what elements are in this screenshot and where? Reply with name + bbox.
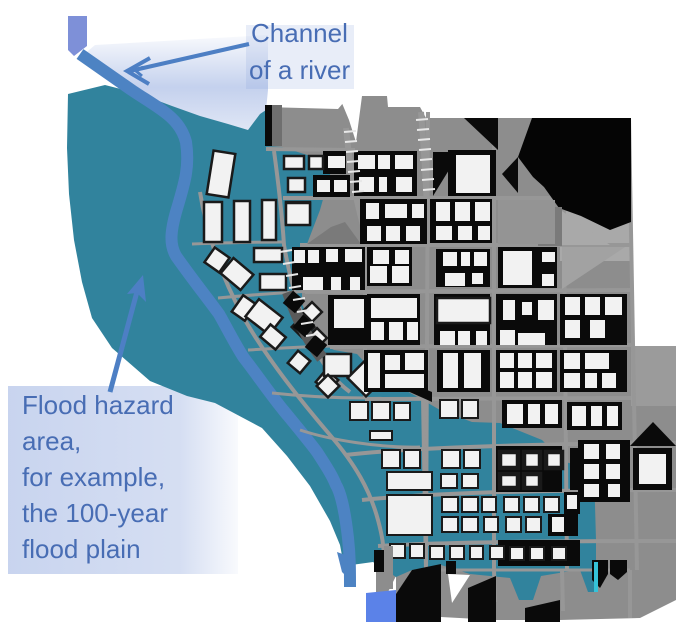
svg-text:Flood hazard: Flood hazard <box>22 390 174 420</box>
svg-text:flood plain: flood plain <box>22 534 141 564</box>
svg-text:the 100-year: the 100-year <box>22 498 168 528</box>
svg-text:Channel: Channel <box>251 18 348 48</box>
svg-text:area,: area, <box>22 426 81 456</box>
svg-text:for example,: for example, <box>22 462 165 492</box>
svg-text:of a river: of a river <box>249 55 350 85</box>
